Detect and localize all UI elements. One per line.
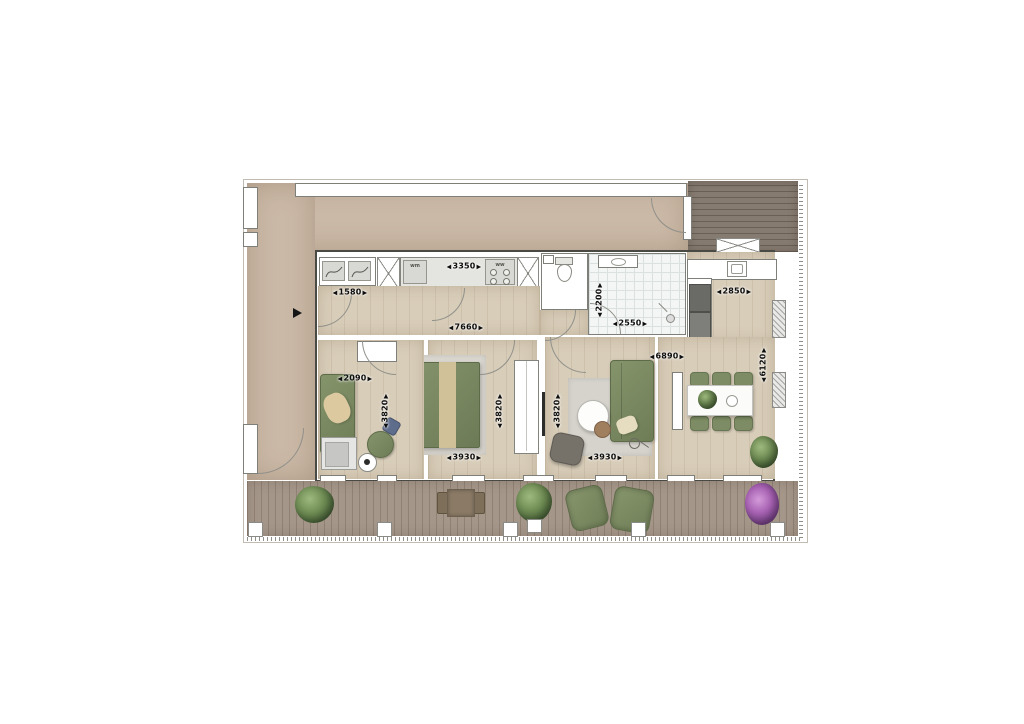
wardrobe <box>514 360 539 454</box>
hob-burner-icon <box>503 269 510 276</box>
kitchen-sink <box>727 261 747 277</box>
sideboard <box>672 372 683 430</box>
gallery-top-wall <box>295 183 687 197</box>
bistro-table <box>447 489 475 517</box>
washing-machine: wm <box>403 260 427 284</box>
meter-cabinet <box>319 257 376 286</box>
shower-head-icon <box>666 314 675 323</box>
dimension-label: 6890 <box>650 352 685 361</box>
meter-squiggle <box>349 262 372 282</box>
terrace-post <box>248 522 263 537</box>
dimension-label: 3820 <box>553 394 562 429</box>
wardrobe-divider <box>526 361 527 451</box>
stool-center <box>364 459 370 465</box>
meter-box-2 <box>348 261 371 281</box>
dimension-label: 6120 <box>759 348 768 383</box>
dimension-label: 2090 <box>338 374 373 383</box>
railing-right <box>799 183 803 538</box>
hob-unit: ww <box>485 259 515 285</box>
dimension-label: 3820 <box>381 394 390 429</box>
dimension-label: 3350 <box>447 262 482 271</box>
washbasin-bowl <box>611 258 626 266</box>
terrace-post <box>631 522 646 537</box>
dimension-label: 7660 <box>449 323 484 332</box>
terrace-pot <box>527 519 542 533</box>
washing-machine-label: wm <box>410 263 420 269</box>
washbasin <box>598 255 638 268</box>
dimension-label: 3930 <box>588 453 623 462</box>
hob-burner-icon <box>503 278 510 285</box>
hob-burner-icon <box>490 269 497 276</box>
left-wall-column-3 <box>243 424 258 474</box>
terrace-post <box>503 522 518 537</box>
meter-squiggle <box>323 262 346 282</box>
sofa-throw <box>615 414 639 436</box>
bed-runner <box>439 362 456 448</box>
dining-table <box>687 385 753 416</box>
left-wall-column-1 <box>243 187 258 229</box>
dimension-label: 3930 <box>447 453 482 462</box>
dining-chair <box>734 416 753 431</box>
dimension-label: 2850 <box>717 287 752 296</box>
terrace-post <box>770 522 785 537</box>
tall-appliance-2 <box>689 312 711 338</box>
left-wall-column-2 <box>243 232 258 247</box>
window-right-1 <box>772 300 786 338</box>
tall-appliance-1 <box>689 284 711 312</box>
sofa <box>610 360 654 442</box>
dimension-label: 1580 <box>333 288 368 297</box>
kitchen-sink-basin <box>731 264 743 274</box>
meter-box-1 <box>322 261 345 281</box>
desk <box>321 437 357 470</box>
duct-shaft-4 <box>716 238 760 253</box>
dimension-label: 2550 <box>613 319 648 328</box>
pouf <box>548 431 586 467</box>
hob-burner-icon <box>490 278 497 285</box>
daybed-throw <box>320 389 354 426</box>
toilet-sink <box>543 255 554 264</box>
table-jug <box>726 395 738 407</box>
desk-chair <box>367 431 394 458</box>
side-table <box>594 421 611 438</box>
desk-top <box>325 442 349 467</box>
terrace-flowers <box>745 483 779 525</box>
water-heater-label: ww <box>495 262 504 268</box>
floor-plan: wm ww <box>0 0 1024 724</box>
window-right-2 <box>772 372 786 408</box>
dimension-label: 2200 <box>595 283 604 318</box>
railing-bottom <box>247 537 803 541</box>
entrance-arrow-icon <box>293 308 302 318</box>
tv <box>542 392 545 436</box>
terrace-post <box>377 522 392 537</box>
dimension-label: 3820 <box>495 394 504 429</box>
dining-chair <box>690 416 709 431</box>
dining-chair <box>712 416 731 431</box>
